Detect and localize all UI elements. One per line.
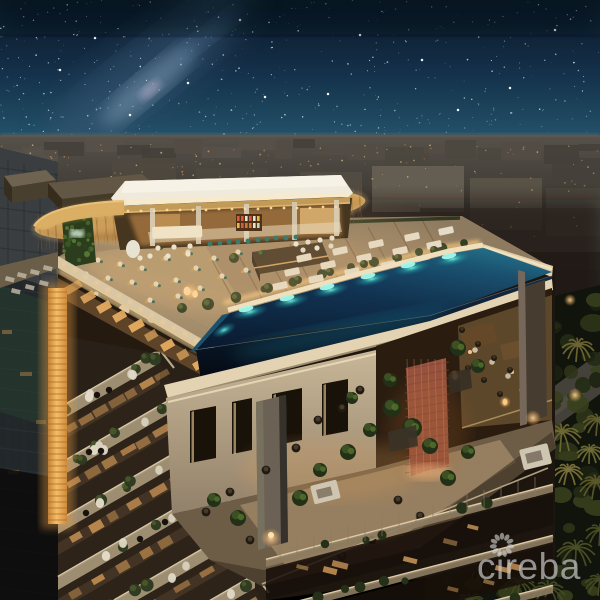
svg-text:cireba: cireba — [477, 546, 581, 587]
